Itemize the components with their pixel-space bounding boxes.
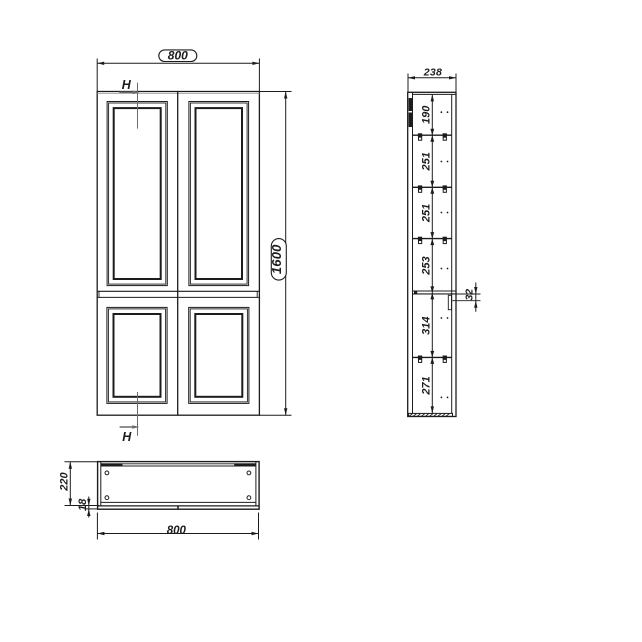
svg-text:190: 190: [420, 105, 432, 124]
svg-text:251: 251: [420, 152, 432, 171]
svg-text:H: H: [122, 78, 132, 92]
svg-text:18: 18: [77, 498, 89, 511]
svg-text:1600: 1600: [269, 244, 284, 274]
svg-text:238: 238: [423, 66, 442, 78]
svg-text:H: H: [122, 430, 132, 444]
svg-text:800: 800: [167, 525, 187, 537]
svg-text:271: 271: [420, 376, 432, 395]
svg-text:314: 314: [420, 317, 432, 335]
svg-text:220: 220: [58, 472, 70, 492]
svg-text:251: 251: [420, 204, 432, 223]
svg-text:253: 253: [420, 256, 432, 275]
svg-text:32: 32: [464, 289, 476, 301]
svg-text:800: 800: [168, 49, 188, 63]
